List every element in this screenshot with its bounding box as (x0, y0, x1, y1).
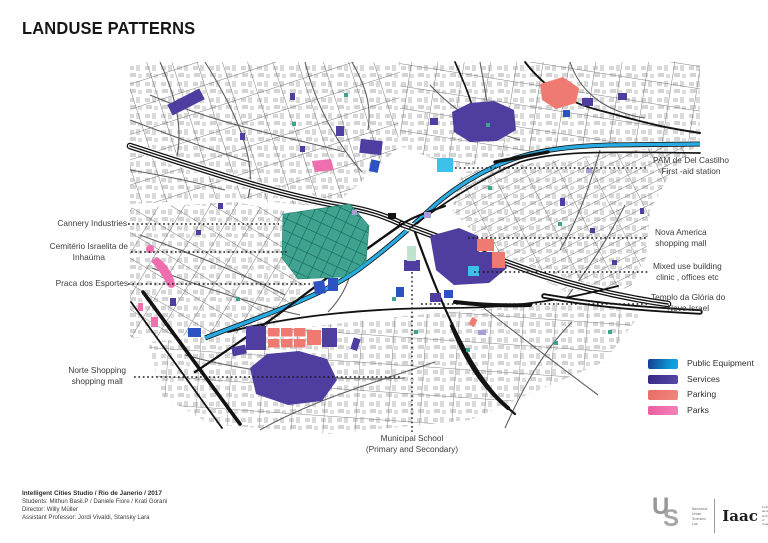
legend-swatch-parks-icon (648, 406, 678, 416)
legend-swatch-public-equipment-icon (648, 359, 678, 369)
label-nova-america: Nova America shopping mall (655, 227, 707, 249)
map-legend: Public Equipment Services Parking Parks (648, 359, 754, 415)
label-norte-shopping: Norte Shopping shopping mall (68, 365, 126, 387)
credits-block: Intelligent Cities Studio / Rio de Janer… (22, 490, 167, 521)
legend-item-parks: Parks (648, 406, 754, 416)
label-cemiterio-israelita: Cemitério Israelita de Inhaúma (50, 241, 128, 263)
legend-item-public-equipment: Public Equipment (648, 359, 754, 369)
label-municipal-school: Municipal School (Primary and Secondary) (312, 433, 512, 455)
legend-swatch-parking-icon (648, 390, 678, 400)
cemetery-area (282, 204, 369, 279)
credits-students: Students: Mithun Basil.P / Daniele Fiore… (22, 498, 167, 506)
label-mixed-use-building: Mixed use building clinic , offices etc (653, 261, 722, 283)
legend-item-services: Services (648, 375, 754, 385)
logos-block: U S Barcelona Urban Sciences Lab Iaac in… (651, 495, 768, 537)
legend-swatch-services-icon (648, 375, 678, 385)
label-cannery-industries: Cannery Industries (57, 218, 127, 229)
credits-director: Director: Willy Müller (22, 506, 167, 514)
landuse-poster: LANDUSE PATTERNS (0, 0, 768, 543)
iaac-logo-text: institute for advanced architecture of C… (762, 506, 768, 527)
credits-studio: Intelligent Cities Studio / Rio de Janer… (22, 490, 167, 498)
legend-item-parking: Parking (648, 390, 754, 400)
busl-logo-mark: U S (651, 496, 685, 536)
busl-logo-text: Barcelona Urban Sciences Lab (692, 507, 707, 526)
iaac-logo: Iaac institute for advanced architecture… (722, 506, 768, 527)
label-praca-dos-esportes: Praca dos Esportes (56, 278, 128, 289)
credits-assistant: Assistant Professor: Jordi Vivaldi, Stan… (22, 514, 167, 522)
logo-divider (714, 499, 715, 533)
label-pam-del-castilho: PAM de Del Castilho First -aid station (653, 155, 729, 177)
label-templo-da-gloria: Templo da Glória do Novo Israel (651, 292, 725, 314)
